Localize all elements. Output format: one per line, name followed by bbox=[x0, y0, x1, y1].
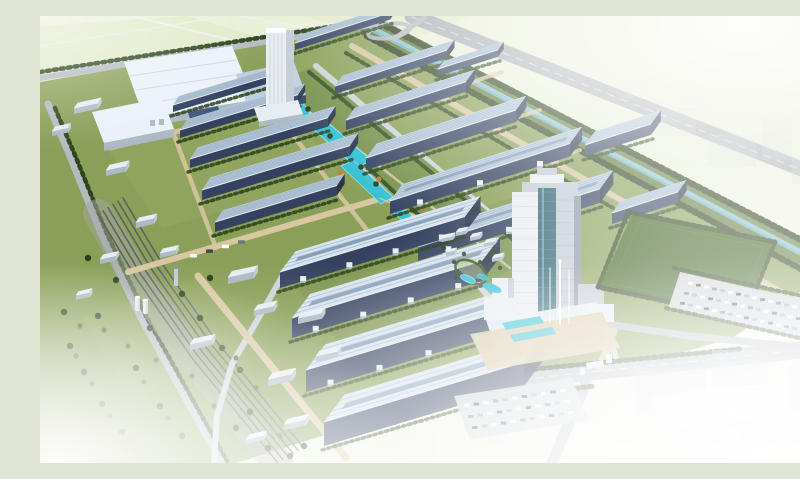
scene-canvas bbox=[40, 16, 800, 463]
haze-overlay-top-left bbox=[40, 16, 800, 463]
industrial-park-aerial-rendering bbox=[40, 16, 800, 463]
